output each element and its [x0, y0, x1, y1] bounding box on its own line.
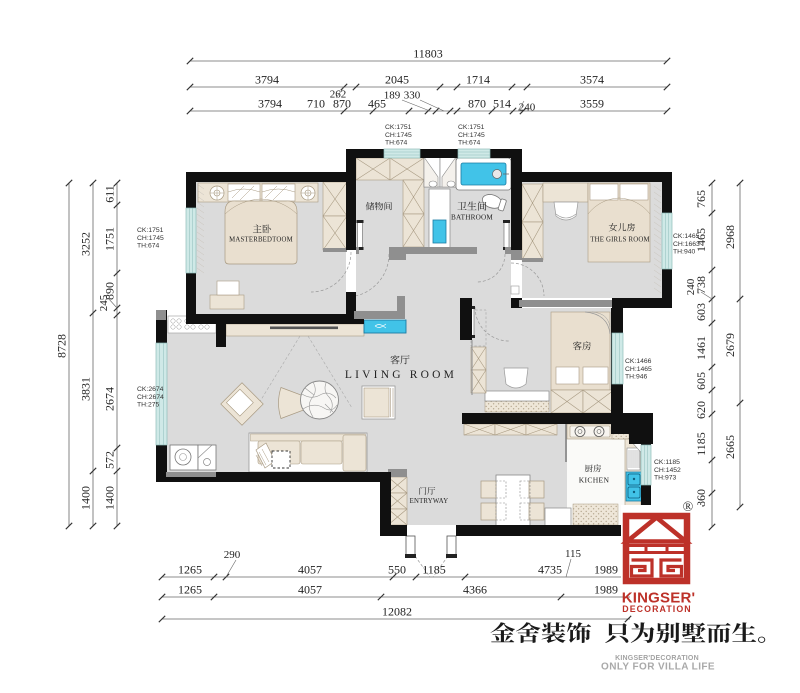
svg-text:CH:2674: CH:2674 [137, 394, 164, 401]
svg-text:®: ® [683, 500, 694, 515]
svg-text:MASTERBEDTOOM: MASTERBEDTOOM [229, 237, 293, 244]
svg-text:1185: 1185 [422, 563, 446, 577]
svg-text:115: 115 [565, 548, 582, 560]
svg-text:CH:1452: CH:1452 [654, 467, 681, 474]
svg-text:KICHEN: KICHEN [579, 476, 610, 485]
svg-text:ONLY FOR VILLA LIFE: ONLY FOR VILLA LIFE [601, 662, 715, 673]
svg-text:262: 262 [330, 89, 347, 101]
svg-text:CK:1751: CK:1751 [137, 227, 164, 234]
svg-text:1400: 1400 [79, 486, 93, 510]
svg-text:1989: 1989 [594, 583, 618, 597]
svg-text:1714: 1714 [466, 73, 490, 87]
svg-text:LIVING ROOM: LIVING ROOM [345, 369, 457, 381]
svg-text:1265: 1265 [178, 583, 202, 597]
svg-text:290: 290 [224, 549, 241, 561]
svg-text:765: 765 [694, 190, 708, 208]
svg-text:860: 860 [694, 489, 708, 507]
svg-text:1461: 1461 [694, 336, 708, 360]
svg-text:514: 514 [493, 97, 511, 111]
svg-text:DECORATION: DECORATION [622, 604, 691, 614]
svg-text:620: 620 [694, 401, 708, 419]
svg-text:710: 710 [307, 97, 325, 111]
svg-text:THE GIRLS ROOM: THE GIRLS ROOM [590, 237, 649, 244]
svg-text:4735: 4735 [538, 563, 562, 577]
svg-text:1185: 1185 [694, 432, 708, 456]
svg-text:3794: 3794 [258, 97, 282, 111]
svg-text:3252: 3252 [79, 232, 93, 256]
svg-text:ENTRYWAY: ENTRYWAY [410, 498, 449, 505]
svg-text:1465: 1465 [694, 228, 708, 252]
svg-text:CH:1745: CH:1745 [137, 235, 164, 242]
svg-text:TH:946: TH:946 [625, 374, 648, 381]
svg-text:CH:1745: CH:1745 [385, 132, 412, 139]
svg-text:TH:940: TH:940 [673, 249, 696, 256]
svg-text:12082: 12082 [382, 605, 412, 619]
svg-text:240: 240 [685, 278, 697, 295]
svg-text:3831: 3831 [79, 377, 93, 401]
svg-text:CK:1185: CK:1185 [654, 459, 680, 466]
svg-text:572: 572 [103, 451, 117, 469]
svg-text:3559: 3559 [580, 97, 604, 111]
svg-text:605: 605 [694, 372, 708, 390]
svg-text:CH:1745: CH:1745 [458, 132, 485, 139]
svg-text:11803: 11803 [413, 47, 443, 61]
svg-text:2674: 2674 [103, 387, 117, 411]
svg-text:2679: 2679 [723, 333, 737, 357]
svg-text:CK:1751: CK:1751 [385, 124, 412, 131]
svg-text:2665: 2665 [723, 435, 737, 459]
svg-text:2045: 2045 [385, 73, 409, 87]
svg-text:870: 870 [468, 97, 486, 111]
svg-text:CK:1466: CK:1466 [625, 358, 652, 365]
svg-text:1400: 1400 [103, 486, 117, 510]
svg-text:4057: 4057 [298, 583, 322, 597]
svg-text:2968: 2968 [723, 225, 737, 249]
svg-text:BATHROOM: BATHROOM [451, 214, 493, 222]
svg-text:1989: 1989 [594, 563, 618, 577]
svg-text:TH:275: TH:275 [137, 402, 160, 409]
svg-text:TH:973: TH:973 [654, 475, 677, 482]
svg-text:CH:1465: CH:1465 [625, 366, 652, 373]
svg-text:3794: 3794 [255, 73, 279, 87]
svg-text:CK:1751: CK:1751 [458, 124, 485, 131]
svg-text:603: 603 [694, 303, 708, 321]
svg-text:330: 330 [404, 90, 421, 102]
svg-text:611: 611 [103, 185, 117, 203]
svg-text:TH:674: TH:674 [385, 140, 408, 147]
svg-text:245: 245 [98, 294, 110, 311]
svg-text:550: 550 [388, 563, 406, 577]
svg-text:240: 240 [519, 102, 536, 114]
svg-text:3574: 3574 [580, 73, 604, 87]
svg-text:1751: 1751 [103, 227, 117, 251]
svg-text:8728: 8728 [55, 334, 69, 358]
svg-text:4057: 4057 [298, 563, 322, 577]
svg-text:CK:2674: CK:2674 [137, 386, 164, 393]
svg-text:4366: 4366 [463, 583, 487, 597]
svg-text:TH:674: TH:674 [137, 243, 160, 250]
svg-text:1265: 1265 [178, 563, 202, 577]
svg-text:189: 189 [384, 90, 401, 102]
svg-text:TH:674: TH:674 [458, 140, 481, 147]
